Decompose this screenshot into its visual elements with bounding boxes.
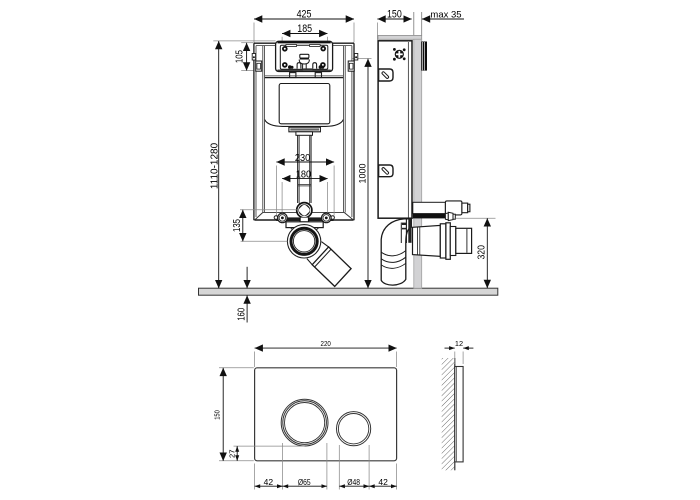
svg-text:max 35: max 35 bbox=[430, 10, 461, 21]
svg-text:1000: 1000 bbox=[358, 163, 368, 183]
svg-text:150: 150 bbox=[387, 8, 402, 20]
svg-text:Ø48: Ø48 bbox=[347, 478, 360, 487]
svg-text:12: 12 bbox=[455, 339, 463, 348]
svg-text:320: 320 bbox=[476, 245, 487, 260]
svg-text:42: 42 bbox=[378, 478, 388, 487]
svg-text:150: 150 bbox=[213, 410, 222, 420]
svg-text:220: 220 bbox=[321, 339, 331, 348]
svg-text:Ø65: Ø65 bbox=[298, 478, 311, 487]
svg-text:42: 42 bbox=[264, 478, 274, 487]
svg-text:135: 135 bbox=[232, 219, 243, 232]
svg-text:425: 425 bbox=[297, 8, 312, 20]
svg-text:230: 230 bbox=[295, 153, 311, 164]
svg-text:1110-1280: 1110-1280 bbox=[209, 142, 220, 189]
svg-text:105: 105 bbox=[234, 50, 245, 63]
svg-text:27: 27 bbox=[228, 450, 237, 458]
svg-text:180: 180 bbox=[296, 169, 312, 180]
svg-text:185: 185 bbox=[297, 23, 312, 35]
svg-text:160: 160 bbox=[236, 307, 247, 320]
